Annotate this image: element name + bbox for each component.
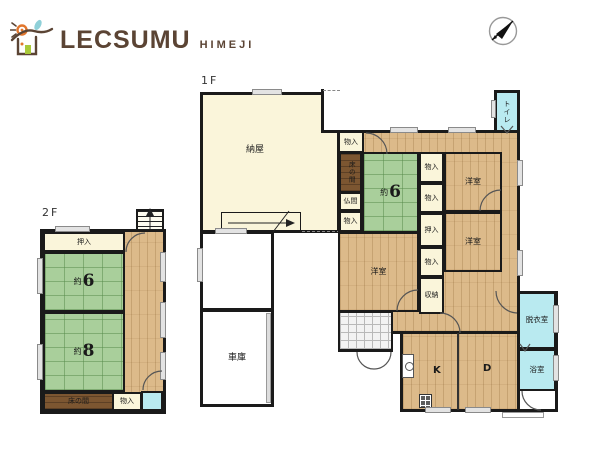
room-1f-closet-3: 物入	[419, 247, 444, 277]
room-label: 仏間	[344, 197, 358, 205]
room-2f-tokonoma: 床の間	[43, 392, 114, 411]
window	[37, 258, 43, 294]
brand-header: LECSUMU HIMEJI	[10, 8, 254, 55]
room-label: 物入	[344, 217, 358, 225]
compass-north-icon	[486, 14, 520, 48]
room-2f-washbasin	[141, 391, 163, 411]
room-1f-storage-unlabeled	[200, 231, 274, 311]
window	[491, 100, 496, 118]
room-label: トイレ	[503, 100, 511, 124]
room-1f-monoire-west: 物入	[339, 211, 362, 232]
room-label: 押入	[425, 226, 439, 234]
kitchen-stove	[419, 394, 432, 408]
room-2f-monoire: 物入	[112, 392, 142, 411]
room-2f-tatami8: 約 8	[43, 312, 125, 392]
room-label: 車庫	[228, 353, 246, 363]
boundary-dash	[323, 90, 340, 91]
window	[517, 160, 523, 186]
room-1f-western-1: 洋室	[444, 152, 502, 212]
window	[160, 352, 166, 380]
room-label: 洋室	[465, 237, 481, 246]
room-label: 浴室	[530, 366, 545, 375]
room-size: 8	[83, 342, 95, 362]
room-2f-tatami6: 約 6	[43, 252, 125, 312]
room-label: 物入	[425, 194, 439, 202]
room-label: 押入	[77, 238, 91, 246]
room-1f-kitchen-label: K	[433, 366, 441, 376]
kd-partition-wall	[457, 333, 459, 410]
room-1f-kitchen-dining	[400, 331, 520, 412]
room-1f-oshiire: 押入	[419, 213, 444, 247]
room-1f-western-3: 洋室	[338, 232, 419, 312]
room-1f-butsuma: 仏間	[339, 192, 362, 211]
garage-door	[266, 313, 271, 403]
room-1f-dining-label: D	[483, 364, 491, 374]
window	[252, 89, 282, 95]
window	[465, 407, 491, 413]
room-1f-tatami6: 約 6	[362, 152, 419, 233]
room-label: 約	[74, 347, 82, 356]
window	[390, 127, 418, 133]
room-1f-tokonoma: 床の間	[339, 152, 362, 193]
room-label: 約	[74, 277, 82, 286]
room-1f-western-2: 洋室	[444, 212, 502, 272]
room-label: 収納	[425, 291, 439, 299]
window	[448, 127, 476, 133]
room-1f-bath: 浴室	[518, 349, 556, 391]
room-label: 物入	[344, 138, 358, 146]
room-label: 洋室	[465, 177, 481, 186]
window	[160, 252, 166, 282]
window	[517, 250, 523, 276]
room-1f-dressing: 脱衣室	[518, 292, 556, 349]
window	[197, 248, 203, 282]
brand-name: LECSUMU	[60, 26, 191, 55]
logo-house-icon	[10, 18, 54, 58]
building-notch	[321, 89, 340, 133]
room-1f-monoire-entry: 物入	[338, 131, 364, 153]
floor-1-label: 1F	[201, 74, 218, 87]
exterior-step	[502, 412, 544, 418]
room-1f-garage: 車庫	[200, 309, 274, 407]
genkan-entrance	[338, 311, 393, 352]
room-label: 床の間	[68, 397, 89, 405]
floorplan-canvas: LECSUMU HIMEJI 2F 押入 約 6 約 8 床の間 物入 1F 納…	[0, 0, 600, 450]
room-size: 6	[83, 272, 95, 292]
room-1f-closet-2: 物入	[419, 183, 444, 213]
room-label: 洋室	[371, 267, 387, 276]
room-2f-oshiire: 押入	[43, 232, 125, 252]
room-1f-naya-label: 納屋	[246, 146, 264, 155]
window	[160, 302, 166, 338]
room-1f-toilet: トイレ	[494, 90, 520, 133]
window	[553, 305, 559, 333]
brand-region: HIMEJI	[200, 39, 255, 51]
room-1f-shunou: 収納	[419, 277, 444, 314]
room-label: 約	[380, 188, 388, 197]
window	[553, 355, 559, 381]
window	[37, 344, 43, 380]
room-label: 脱衣室	[526, 316, 549, 325]
kitchen-sink	[402, 354, 414, 378]
room-label: 床の間	[347, 161, 354, 184]
window	[425, 407, 451, 413]
room-size: 6	[389, 183, 401, 203]
room-label: 物入	[120, 397, 134, 405]
window	[55, 226, 90, 232]
room-label: 物入	[425, 163, 439, 171]
floor-2-label: 2F	[42, 206, 59, 219]
room-1f-closet-1: 物入	[419, 152, 444, 183]
room-label: 物入	[425, 258, 439, 266]
window	[215, 228, 247, 234]
